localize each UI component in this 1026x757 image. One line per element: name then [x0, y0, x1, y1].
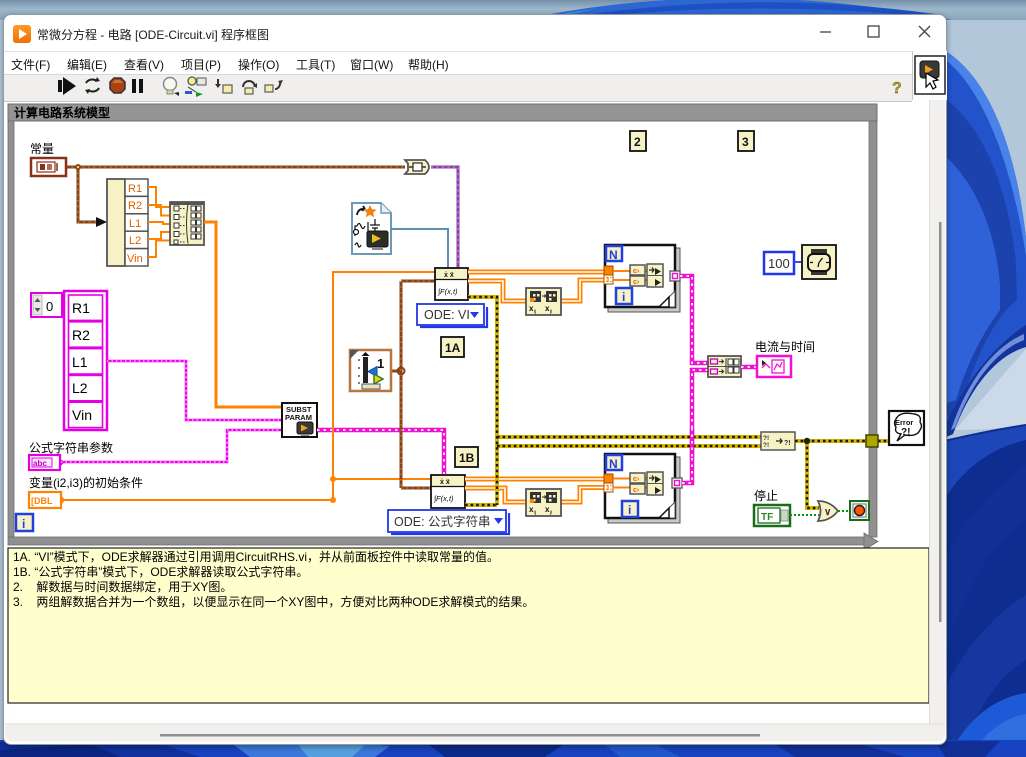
svg-text:R1: R1 — [72, 300, 90, 316]
svg-text:R2: R2 — [128, 200, 142, 212]
svg-text:[DBL: [DBL — [31, 496, 53, 506]
svg-text:L2: L2 — [129, 235, 141, 247]
svg-text:c›: c› — [633, 279, 640, 286]
svg-text:1A. “VI”模式下，ODE求解器通过引用调用Circui: 1A. “VI”模式下，ODE求解器通过引用调用CircuitRHS.vi，并从… — [13, 549, 499, 564]
svg-text:1: 1 — [377, 356, 384, 371]
svg-text:R1: R1 — [128, 183, 142, 195]
svg-text:abc: abc — [33, 459, 47, 468]
svg-text:停止: 停止 — [754, 488, 778, 503]
svg-text:ODE: VI: ODE: VI — [424, 308, 470, 322]
svg-text:N: N — [609, 248, 618, 262]
svg-text:R2: R2 — [72, 327, 90, 343]
svg-text:∨: ∨ — [824, 507, 831, 518]
svg-text:100: 100 — [768, 256, 790, 271]
svg-text:ji: ji — [549, 510, 552, 516]
svg-text:3. 两组解数据合并为一个数组，以便显示在同一个XY图: 3. 两组解数据合并为一个数组，以便显示在同一个XY图中，方便对比两种ODE求解… — [13, 594, 534, 609]
svg-text:1B. “公式字符串”模式下，ODE求解器读取公式字符串。: 1B. “公式字符串”模式下，ODE求解器读取公式字符串。 — [13, 564, 308, 579]
svg-text:i: i — [22, 517, 25, 531]
svg-text:变量(i2,i3)的初始条件: 变量(i2,i3)的初始条件 — [29, 475, 143, 490]
svg-text:2: 2 — [634, 135, 641, 149]
svg-text:c›: c› — [633, 268, 640, 275]
svg-text:ẋ ẍ: ẋ ẍ — [440, 479, 450, 486]
svg-text:电流与时间: 电流与时间 — [755, 340, 815, 354]
svg-text:Vin: Vin — [127, 253, 143, 265]
svg-text:Error: Error — [895, 418, 913, 427]
svg-text:?!: ?! — [901, 427, 910, 438]
svg-text:?!: ?! — [763, 442, 769, 449]
svg-text:ij: ij — [534, 309, 536, 315]
svg-text:0: 0 — [46, 299, 53, 314]
svg-text:ij: ij — [534, 510, 536, 516]
svg-text:L1: L1 — [72, 354, 88, 370]
svg-text:3: 3 — [742, 135, 749, 149]
svg-text:?!: ?! — [784, 440, 791, 447]
svg-text:i: i — [628, 503, 631, 517]
svg-text:计算电路系统模型: 计算电路系统模型 — [14, 105, 110, 120]
svg-text:常量: 常量 — [30, 142, 54, 156]
svg-text:ODE: 公式字符串: ODE: 公式字符串 — [394, 514, 491, 529]
svg-text:N: N — [609, 457, 618, 471]
svg-text:2. 解数据与时间数据绑定，用于XY图。: 2. 解数据与时间数据绑定，用于XY图。 — [13, 579, 232, 594]
svg-text:PARAM: PARAM — [285, 413, 312, 422]
svg-text:Vin: Vin — [72, 407, 92, 423]
svg-text:1B: 1B — [459, 451, 475, 465]
svg-text:∫F(x,t): ∫F(x,t) — [437, 287, 458, 296]
svg-text:c›: c› — [633, 487, 640, 494]
svg-text:公式字符串参数: 公式字符串参数 — [29, 440, 113, 455]
svg-text:TF: TF — [761, 512, 773, 523]
svg-text:i: i — [622, 290, 625, 304]
svg-text:c›: c› — [633, 476, 640, 483]
svg-text:1A: 1A — [445, 341, 461, 355]
svg-text:L2: L2 — [72, 380, 88, 396]
svg-text:∫F(x,t): ∫F(x,t) — [433, 494, 454, 503]
svg-text:ji: ji — [549, 309, 552, 315]
svg-text:L1: L1 — [129, 218, 141, 230]
svg-text:ẋ ẍ: ẋ ẍ — [444, 272, 454, 279]
svg-text:?!: ?! — [763, 435, 769, 442]
